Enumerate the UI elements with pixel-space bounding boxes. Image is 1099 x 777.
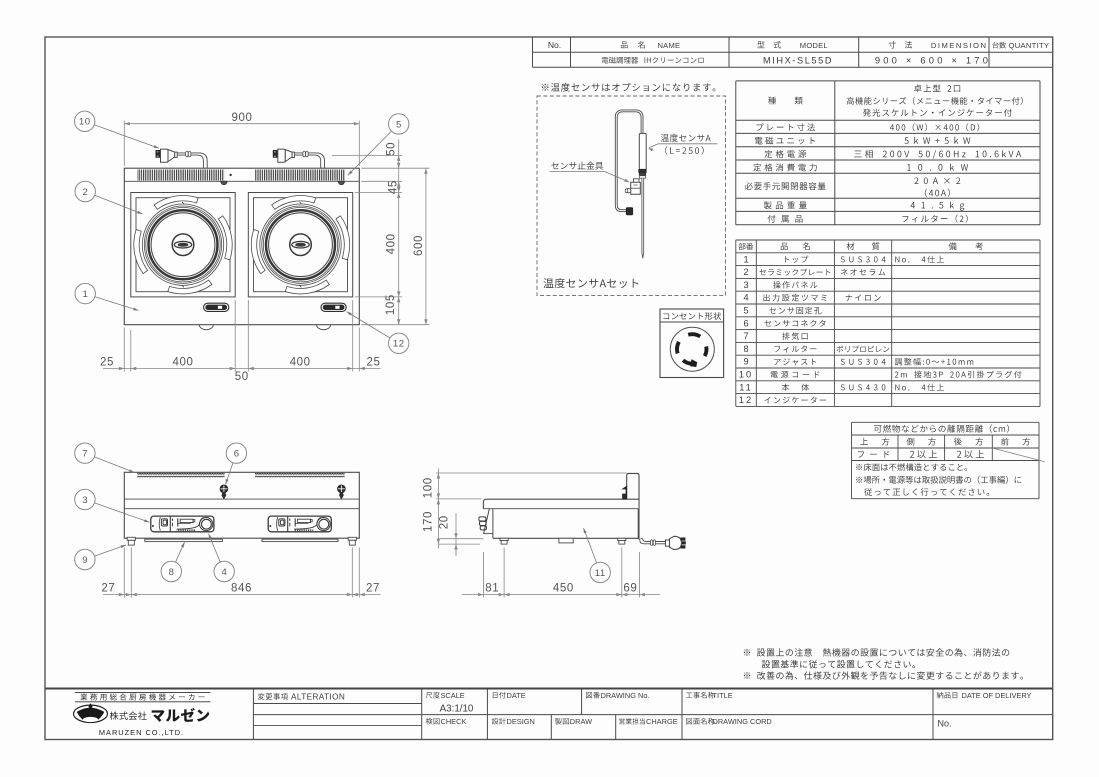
svg-text:1: 1 — [743, 254, 748, 264]
svg-text:CHECK: CHECK — [441, 717, 467, 726]
svg-text:NAME: NAME — [658, 41, 681, 50]
svg-text:6: 6 — [234, 449, 239, 460]
svg-text:9: 9 — [82, 555, 87, 566]
svg-text:DATE OF DELIVERY: DATE OF DELIVERY — [962, 691, 1032, 700]
svg-text:No.: No. — [938, 719, 952, 729]
svg-text:50: 50 — [386, 142, 398, 156]
svg-text:DRAWING CORD: DRAWING CORD — [713, 717, 772, 726]
svg-text:25: 25 — [367, 357, 381, 369]
svg-text:No.: No. — [548, 40, 561, 50]
svg-text:MARUZEN CO.,LTD.: MARUZEN CO.,LTD. — [99, 728, 184, 737]
svg-text:900: 900 — [232, 112, 253, 124]
svg-text:6: 6 — [743, 318, 748, 328]
svg-text:600: 600 — [413, 235, 425, 256]
svg-text:11: 11 — [595, 568, 606, 579]
svg-text:12: 12 — [393, 339, 405, 350]
svg-text:8: 8 — [743, 344, 748, 354]
svg-text:10: 10 — [739, 370, 753, 380]
svg-text:1: 1 — [83, 289, 88, 300]
svg-text:5: 5 — [743, 306, 748, 316]
svg-text:A3:1/10: A3:1/10 — [440, 704, 474, 715]
svg-text:12: 12 — [739, 395, 753, 405]
svg-text:69: 69 — [623, 583, 637, 595]
svg-text:81: 81 — [485, 583, 499, 595]
svg-text:DRAWING No.: DRAWING No. — [601, 691, 650, 700]
svg-text:400: 400 — [290, 357, 311, 369]
svg-text:TITLE: TITLE — [713, 691, 733, 700]
svg-text:DESIGN: DESIGN — [507, 717, 535, 726]
svg-text:27: 27 — [366, 583, 380, 595]
svg-text:8: 8 — [169, 567, 174, 578]
svg-text:4: 4 — [743, 293, 748, 303]
svg-text:846: 846 — [231, 583, 252, 595]
svg-text:900 × 600 × 170: 900 × 600 × 170 — [875, 54, 991, 65]
svg-text:QUANTITY: QUANTITY — [1009, 41, 1050, 50]
svg-text:400: 400 — [386, 233, 398, 254]
svg-text:3: 3 — [82, 495, 87, 506]
svg-text:100: 100 — [423, 477, 435, 498]
svg-text:11: 11 — [739, 382, 753, 392]
svg-text:45: 45 — [388, 180, 400, 194]
svg-text:DIMENSION: DIMENSION — [931, 41, 988, 50]
svg-text:450: 450 — [553, 583, 574, 595]
svg-text:DATE: DATE — [507, 691, 526, 700]
svg-text:ALTERATION: ALTERATION — [291, 692, 345, 701]
svg-text:3: 3 — [743, 280, 748, 290]
svg-text:SCALE: SCALE — [441, 691, 465, 700]
svg-text:7: 7 — [82, 449, 87, 460]
svg-text:2: 2 — [743, 267, 748, 277]
svg-text:10: 10 — [79, 117, 91, 128]
svg-text:5: 5 — [396, 119, 401, 130]
svg-text:2: 2 — [83, 187, 88, 198]
svg-text:4: 4 — [222, 567, 228, 578]
svg-text:20: 20 — [439, 515, 451, 529]
svg-text:CHARGE: CHARGE — [646, 717, 678, 726]
svg-text:25: 25 — [100, 357, 114, 369]
svg-text:170: 170 — [423, 511, 435, 532]
svg-text:DRAW: DRAW — [570, 717, 592, 726]
svg-text:50: 50 — [235, 371, 249, 383]
svg-text:7: 7 — [743, 331, 748, 341]
svg-text:9: 9 — [743, 357, 748, 367]
svg-text:27: 27 — [101, 583, 115, 595]
svg-text:MIHX-SL55D: MIHX-SL55D — [763, 55, 833, 65]
svg-text:MODEL: MODEL — [800, 41, 828, 50]
svg-text:400: 400 — [173, 357, 194, 369]
svg-text:105: 105 — [385, 294, 397, 315]
